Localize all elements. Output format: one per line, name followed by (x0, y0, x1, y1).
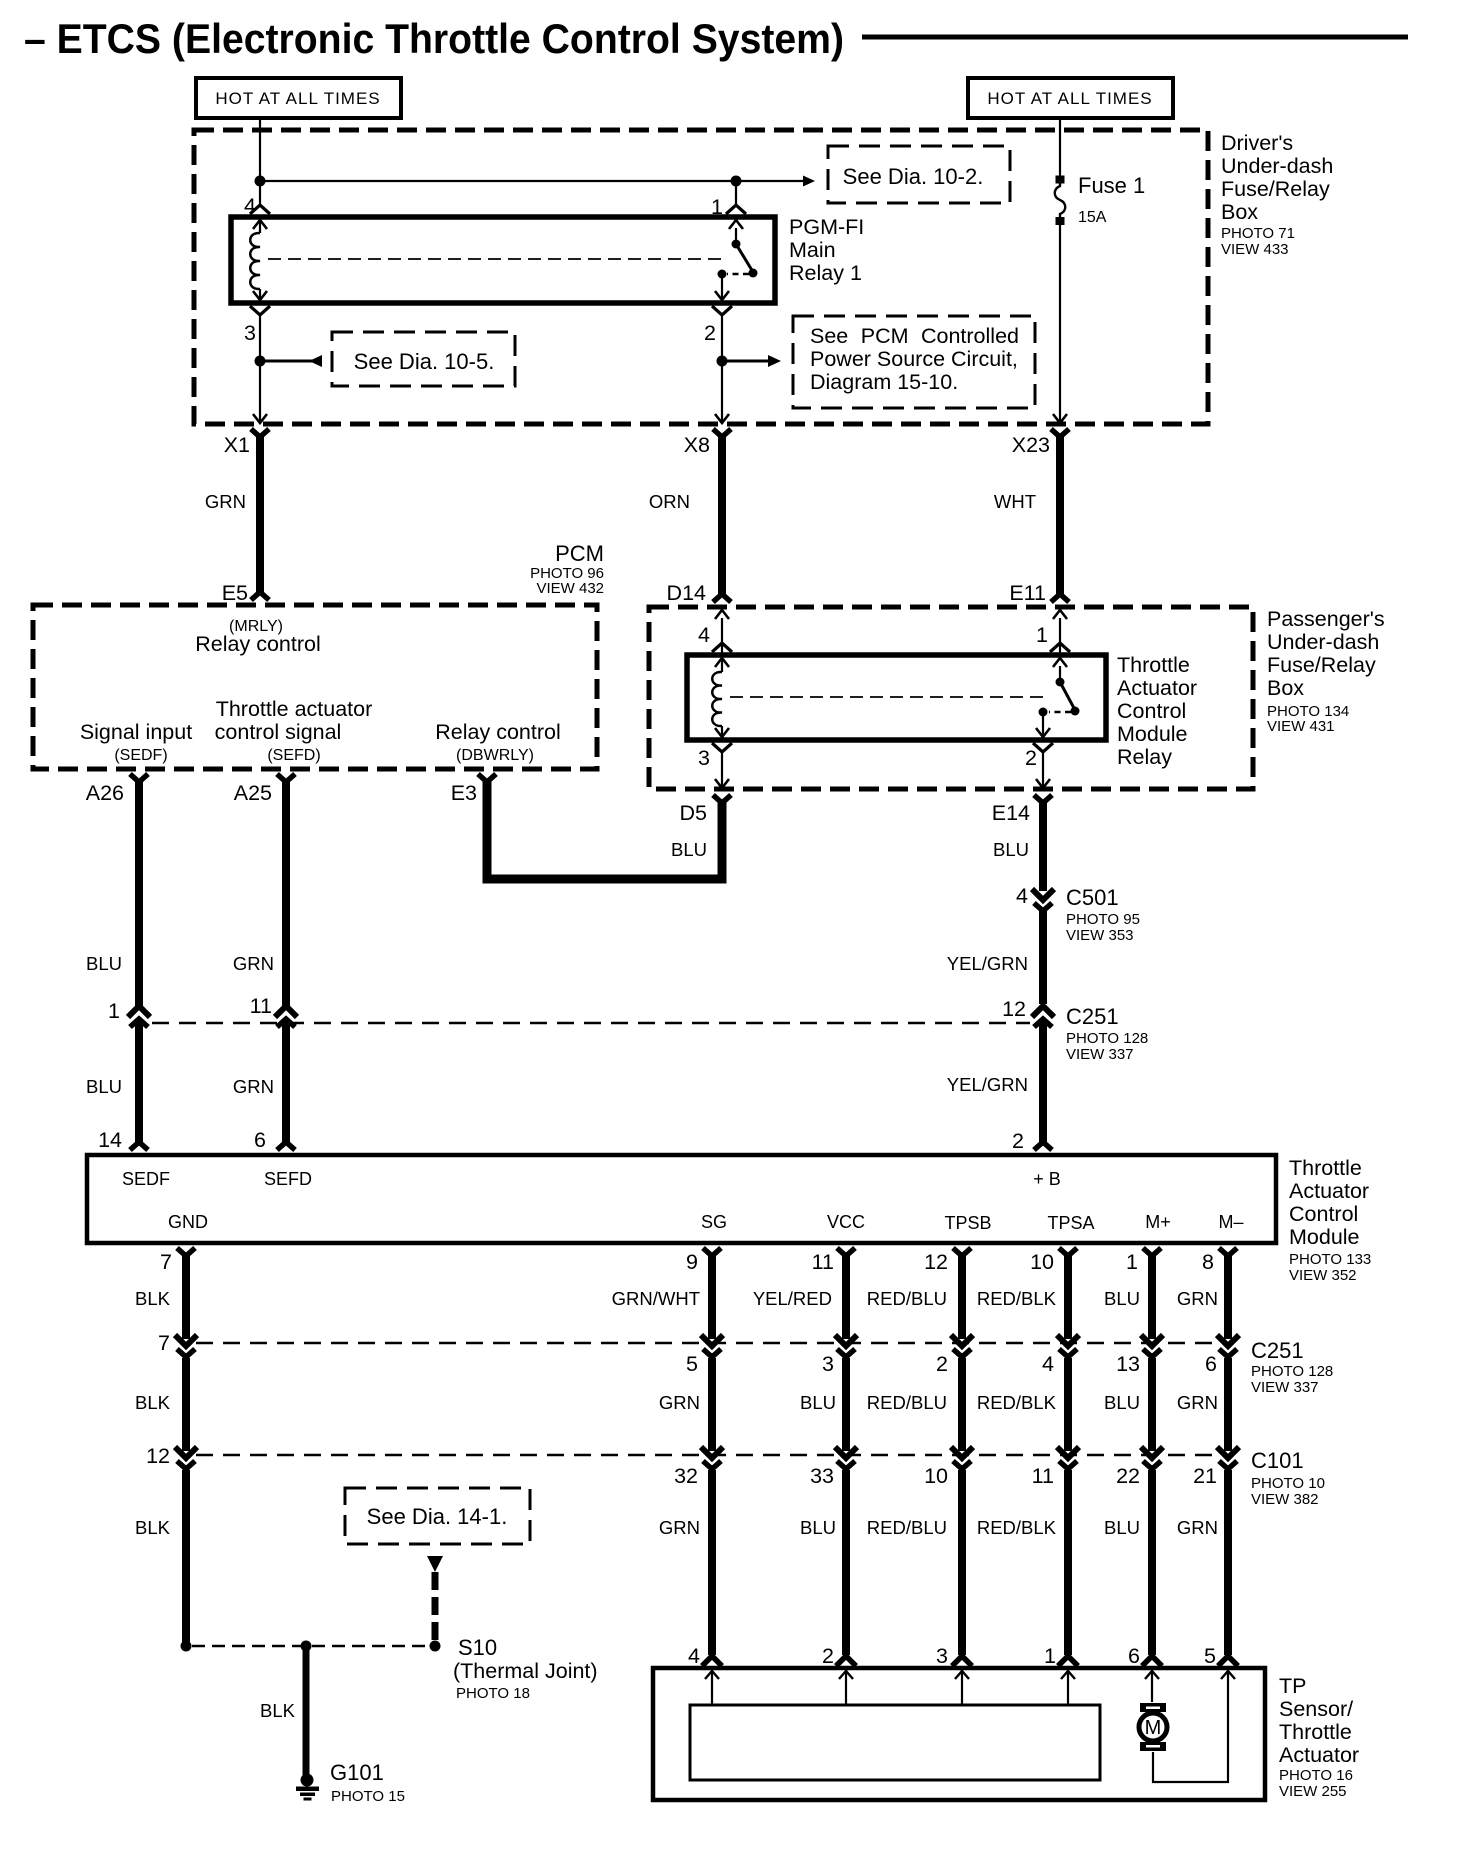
svg-text:GRN: GRN (1177, 1288, 1218, 1309)
svg-text:Control: Control (1117, 699, 1186, 723)
svg-text:5: 5 (1204, 1644, 1216, 1668)
svg-text:2: 2 (1025, 746, 1037, 770)
svg-text:X23: X23 (1012, 433, 1050, 457)
svg-text:VIEW 353: VIEW 353 (1066, 927, 1134, 944)
svg-text:TPSB: TPSB (944, 1213, 991, 1233)
svg-text:C251: C251 (1251, 1338, 1304, 1363)
svg-text:Throttle: Throttle (1117, 653, 1190, 677)
svg-text:2: 2 (822, 1644, 834, 1668)
svg-text:9: 9 (686, 1250, 698, 1274)
svg-text:M: M (1145, 1717, 1162, 1739)
svg-text:BLK: BLK (135, 1517, 171, 1538)
svg-text:Control: Control (1289, 1202, 1358, 1226)
svg-text:VIEW 352: VIEW 352 (1289, 1267, 1357, 1284)
svg-text:WHT: WHT (994, 491, 1036, 512)
svg-text:(Thermal Joint): (Thermal Joint) (453, 1659, 598, 1683)
svg-text:See Dia. 14-1.: See Dia. 14-1. (367, 1504, 508, 1529)
svg-text:12: 12 (146, 1444, 170, 1468)
svg-text:control signal: control signal (215, 720, 342, 744)
svg-text:33: 33 (810, 1464, 834, 1488)
svg-text:YEL/GRN: YEL/GRN (947, 953, 1028, 974)
svg-text:A25: A25 (234, 781, 272, 805)
svg-text:E11: E11 (1009, 581, 1046, 605)
svg-text:14: 14 (98, 1128, 122, 1152)
svg-text:Relay 1: Relay 1 (789, 261, 862, 285)
svg-text:Throttle: Throttle (1289, 1156, 1362, 1180)
svg-text:D5: D5 (680, 801, 708, 825)
svg-text:13: 13 (1116, 1352, 1140, 1376)
svg-text:11: 11 (250, 994, 272, 1018)
svg-text:32: 32 (674, 1464, 698, 1488)
svg-text:C501: C501 (1066, 885, 1119, 910)
svg-text:GRN: GRN (659, 1517, 700, 1538)
svg-text:1: 1 (711, 195, 723, 219)
svg-text:SG: SG (701, 1212, 727, 1232)
svg-text:Relay control: Relay control (195, 632, 320, 656)
svg-text:11: 11 (812, 1250, 834, 1274)
svg-text:3: 3 (698, 746, 710, 770)
svg-text:GRN: GRN (205, 491, 246, 512)
svg-text:GRN: GRN (1177, 1517, 1218, 1538)
svg-text:7: 7 (160, 1250, 172, 1274)
svg-text:1: 1 (1044, 1644, 1056, 1668)
svg-text:E5: E5 (222, 581, 248, 605)
svg-text:PHOTO 95: PHOTO 95 (1066, 911, 1140, 928)
svg-text:4: 4 (688, 1644, 700, 1668)
svg-text:BLU: BLU (1104, 1392, 1140, 1413)
svg-text:Box: Box (1267, 676, 1304, 700)
svg-text:3: 3 (244, 321, 256, 345)
svg-text:11: 11 (1032, 1464, 1054, 1488)
svg-text:21: 21 (1193, 1464, 1217, 1488)
svg-text:VIEW 255: VIEW 255 (1279, 1783, 1347, 1800)
svg-text:Fuse/Relay: Fuse/Relay (1221, 177, 1330, 201)
svg-text:HOT AT ALL TIMES: HOT AT ALL TIMES (215, 89, 380, 108)
svg-text:Actuator: Actuator (1117, 676, 1197, 700)
svg-text:SEFD: SEFD (264, 1169, 312, 1189)
svg-text:GRN: GRN (659, 1392, 700, 1413)
svg-text:C101: C101 (1251, 1448, 1304, 1473)
svg-text:E3: E3 (451, 781, 477, 805)
svg-text:RED/BLK: RED/BLK (977, 1392, 1057, 1413)
svg-text:22: 22 (1116, 1464, 1140, 1488)
svg-text:PHOTO 71: PHOTO 71 (1221, 225, 1295, 242)
svg-text:7: 7 (158, 1331, 170, 1355)
svg-text:PHOTO 128: PHOTO 128 (1251, 1363, 1333, 1380)
svg-text:RED/BLU: RED/BLU (867, 1392, 947, 1413)
svg-text:GRN/WHT: GRN/WHT (612, 1288, 700, 1309)
svg-text:BLU: BLU (1104, 1517, 1140, 1538)
svg-text:VIEW 431: VIEW 431 (1267, 718, 1335, 735)
svg-text:6: 6 (1205, 1352, 1217, 1376)
svg-text:1: 1 (1036, 623, 1048, 647)
svg-text:VIEW 337: VIEW 337 (1251, 1379, 1319, 1396)
svg-text:TP: TP (1279, 1674, 1306, 1698)
svg-text:G101: G101 (330, 1760, 384, 1785)
svg-text:Relay control: Relay control (435, 720, 560, 744)
svg-text:YEL/GRN: YEL/GRN (947, 1074, 1028, 1095)
svg-text:4: 4 (698, 623, 710, 647)
svg-text:Actuator: Actuator (1279, 1743, 1359, 1767)
svg-text:GRN: GRN (233, 1076, 274, 1097)
svg-text:4: 4 (1042, 1352, 1054, 1376)
svg-text:+ B: + B (1033, 1169, 1061, 1189)
svg-text:VIEW 433: VIEW 433 (1221, 241, 1289, 258)
svg-text:VCC: VCC (827, 1212, 865, 1232)
svg-text:GRN: GRN (233, 953, 274, 974)
svg-text:See PCM Controlled: See PCM Controlled (810, 324, 1019, 348)
svg-text:6: 6 (254, 1128, 266, 1152)
svg-text:BLK: BLK (135, 1392, 171, 1413)
svg-text:VIEW 432: VIEW 432 (536, 580, 604, 597)
svg-text:BLU: BLU (1104, 1288, 1140, 1309)
svg-text:(DBWRLY): (DBWRLY) (456, 747, 534, 764)
svg-text:RED/BLK: RED/BLK (977, 1517, 1057, 1538)
svg-text:6: 6 (1128, 1644, 1140, 1668)
svg-text:SEDF: SEDF (122, 1169, 170, 1189)
svg-text:YEL/RED: YEL/RED (753, 1288, 832, 1309)
svg-text:3: 3 (822, 1352, 834, 1376)
svg-text:Throttle: Throttle (1279, 1720, 1352, 1744)
svg-text:– ETCS (Electronic Throttle Co: – ETCS (Electronic Throttle Control Syst… (24, 15, 844, 62)
svg-text:PCM: PCM (555, 541, 604, 566)
svg-text:D14: D14 (667, 581, 706, 605)
svg-text:4: 4 (1016, 884, 1028, 908)
svg-text:C251: C251 (1066, 1004, 1119, 1029)
svg-text:15A: 15A (1078, 209, 1107, 226)
svg-text:PHOTO 10: PHOTO 10 (1251, 1475, 1325, 1492)
svg-text:BLU: BLU (86, 1076, 122, 1097)
svg-text:PHOTO 128: PHOTO 128 (1066, 1030, 1148, 1047)
svg-text:Diagram 15-10.: Diagram 15-10. (810, 370, 958, 394)
svg-text:See Dia. 10-2.: See Dia. 10-2. (843, 164, 984, 189)
svg-text:HOT AT ALL TIMES: HOT AT ALL TIMES (987, 89, 1152, 108)
svg-text:Sensor/: Sensor/ (1279, 1697, 1353, 1721)
svg-text:Fuse 1: Fuse 1 (1078, 173, 1145, 198)
svg-text:PGM-FI: PGM-FI (789, 215, 864, 239)
svg-text:See Dia. 10-5.: See Dia. 10-5. (354, 349, 495, 374)
svg-text:BLU: BLU (86, 953, 122, 974)
svg-text:12: 12 (1002, 997, 1026, 1021)
svg-text:Throttle actuator: Throttle actuator (216, 697, 373, 721)
svg-text:S10: S10 (458, 1635, 497, 1660)
svg-text:X8: X8 (684, 433, 710, 457)
svg-text:2: 2 (936, 1352, 948, 1376)
svg-text:BLU: BLU (671, 839, 707, 860)
svg-text:Fuse/Relay: Fuse/Relay (1267, 653, 1376, 677)
svg-text:Actuator: Actuator (1289, 1179, 1369, 1203)
svg-text:3: 3 (936, 1644, 948, 1668)
svg-text:BLK: BLK (260, 1700, 296, 1721)
svg-text:RED/BLK: RED/BLK (977, 1288, 1057, 1309)
svg-text:5: 5 (686, 1352, 698, 1376)
svg-text:M+: M+ (1145, 1212, 1171, 1232)
svg-text:BLU: BLU (800, 1392, 836, 1413)
svg-text:12: 12 (924, 1250, 948, 1274)
svg-text:PHOTO 15: PHOTO 15 (331, 1788, 405, 1805)
svg-text:4: 4 (244, 194, 256, 218)
svg-text:10: 10 (1030, 1250, 1054, 1274)
svg-text:Main: Main (789, 238, 836, 262)
svg-text:GRN: GRN (1177, 1392, 1218, 1413)
svg-text:(SEDF): (SEDF) (114, 747, 167, 764)
svg-text:E14: E14 (992, 801, 1030, 825)
svg-text:10: 10 (924, 1464, 948, 1488)
svg-text:ORN: ORN (649, 491, 690, 512)
svg-text:PHOTO 18: PHOTO 18 (456, 1685, 530, 1702)
svg-text:Under-dash: Under-dash (1221, 154, 1333, 178)
svg-text:PHOTO 133: PHOTO 133 (1289, 1251, 1371, 1268)
svg-text:Power Source Circuit,: Power Source Circuit, (810, 347, 1018, 371)
svg-text:2: 2 (704, 321, 716, 345)
svg-text:Passenger's: Passenger's (1267, 607, 1385, 631)
svg-text:RED/BLU: RED/BLU (867, 1517, 947, 1538)
svg-text:2: 2 (1012, 1129, 1024, 1153)
svg-text:M–: M– (1218, 1212, 1243, 1232)
svg-text:Relay: Relay (1117, 745, 1172, 769)
svg-text:BLK: BLK (135, 1288, 171, 1309)
svg-text:Driver's: Driver's (1221, 131, 1293, 155)
svg-text:Module: Module (1117, 722, 1188, 746)
svg-text:1: 1 (108, 999, 120, 1023)
svg-text:GND: GND (168, 1212, 208, 1232)
svg-text:RED/BLU: RED/BLU (867, 1288, 947, 1309)
svg-text:VIEW 337: VIEW 337 (1066, 1046, 1134, 1063)
svg-text:8: 8 (1202, 1250, 1214, 1274)
svg-text:VIEW 382: VIEW 382 (1251, 1491, 1319, 1508)
svg-text:TPSA: TPSA (1047, 1213, 1094, 1233)
svg-text:A26: A26 (86, 781, 124, 805)
svg-text:X1: X1 (224, 433, 250, 457)
svg-text:(SEFD): (SEFD) (267, 747, 320, 764)
svg-text:BLU: BLU (993, 839, 1029, 860)
svg-text:1: 1 (1126, 1250, 1138, 1274)
svg-text:Box: Box (1221, 200, 1258, 224)
svg-text:Signal input: Signal input (80, 720, 192, 744)
svg-text:PHOTO 16: PHOTO 16 (1279, 1767, 1353, 1784)
svg-text:Under-dash: Under-dash (1267, 630, 1379, 654)
svg-text:BLU: BLU (800, 1517, 836, 1538)
svg-text:Module: Module (1289, 1225, 1360, 1249)
